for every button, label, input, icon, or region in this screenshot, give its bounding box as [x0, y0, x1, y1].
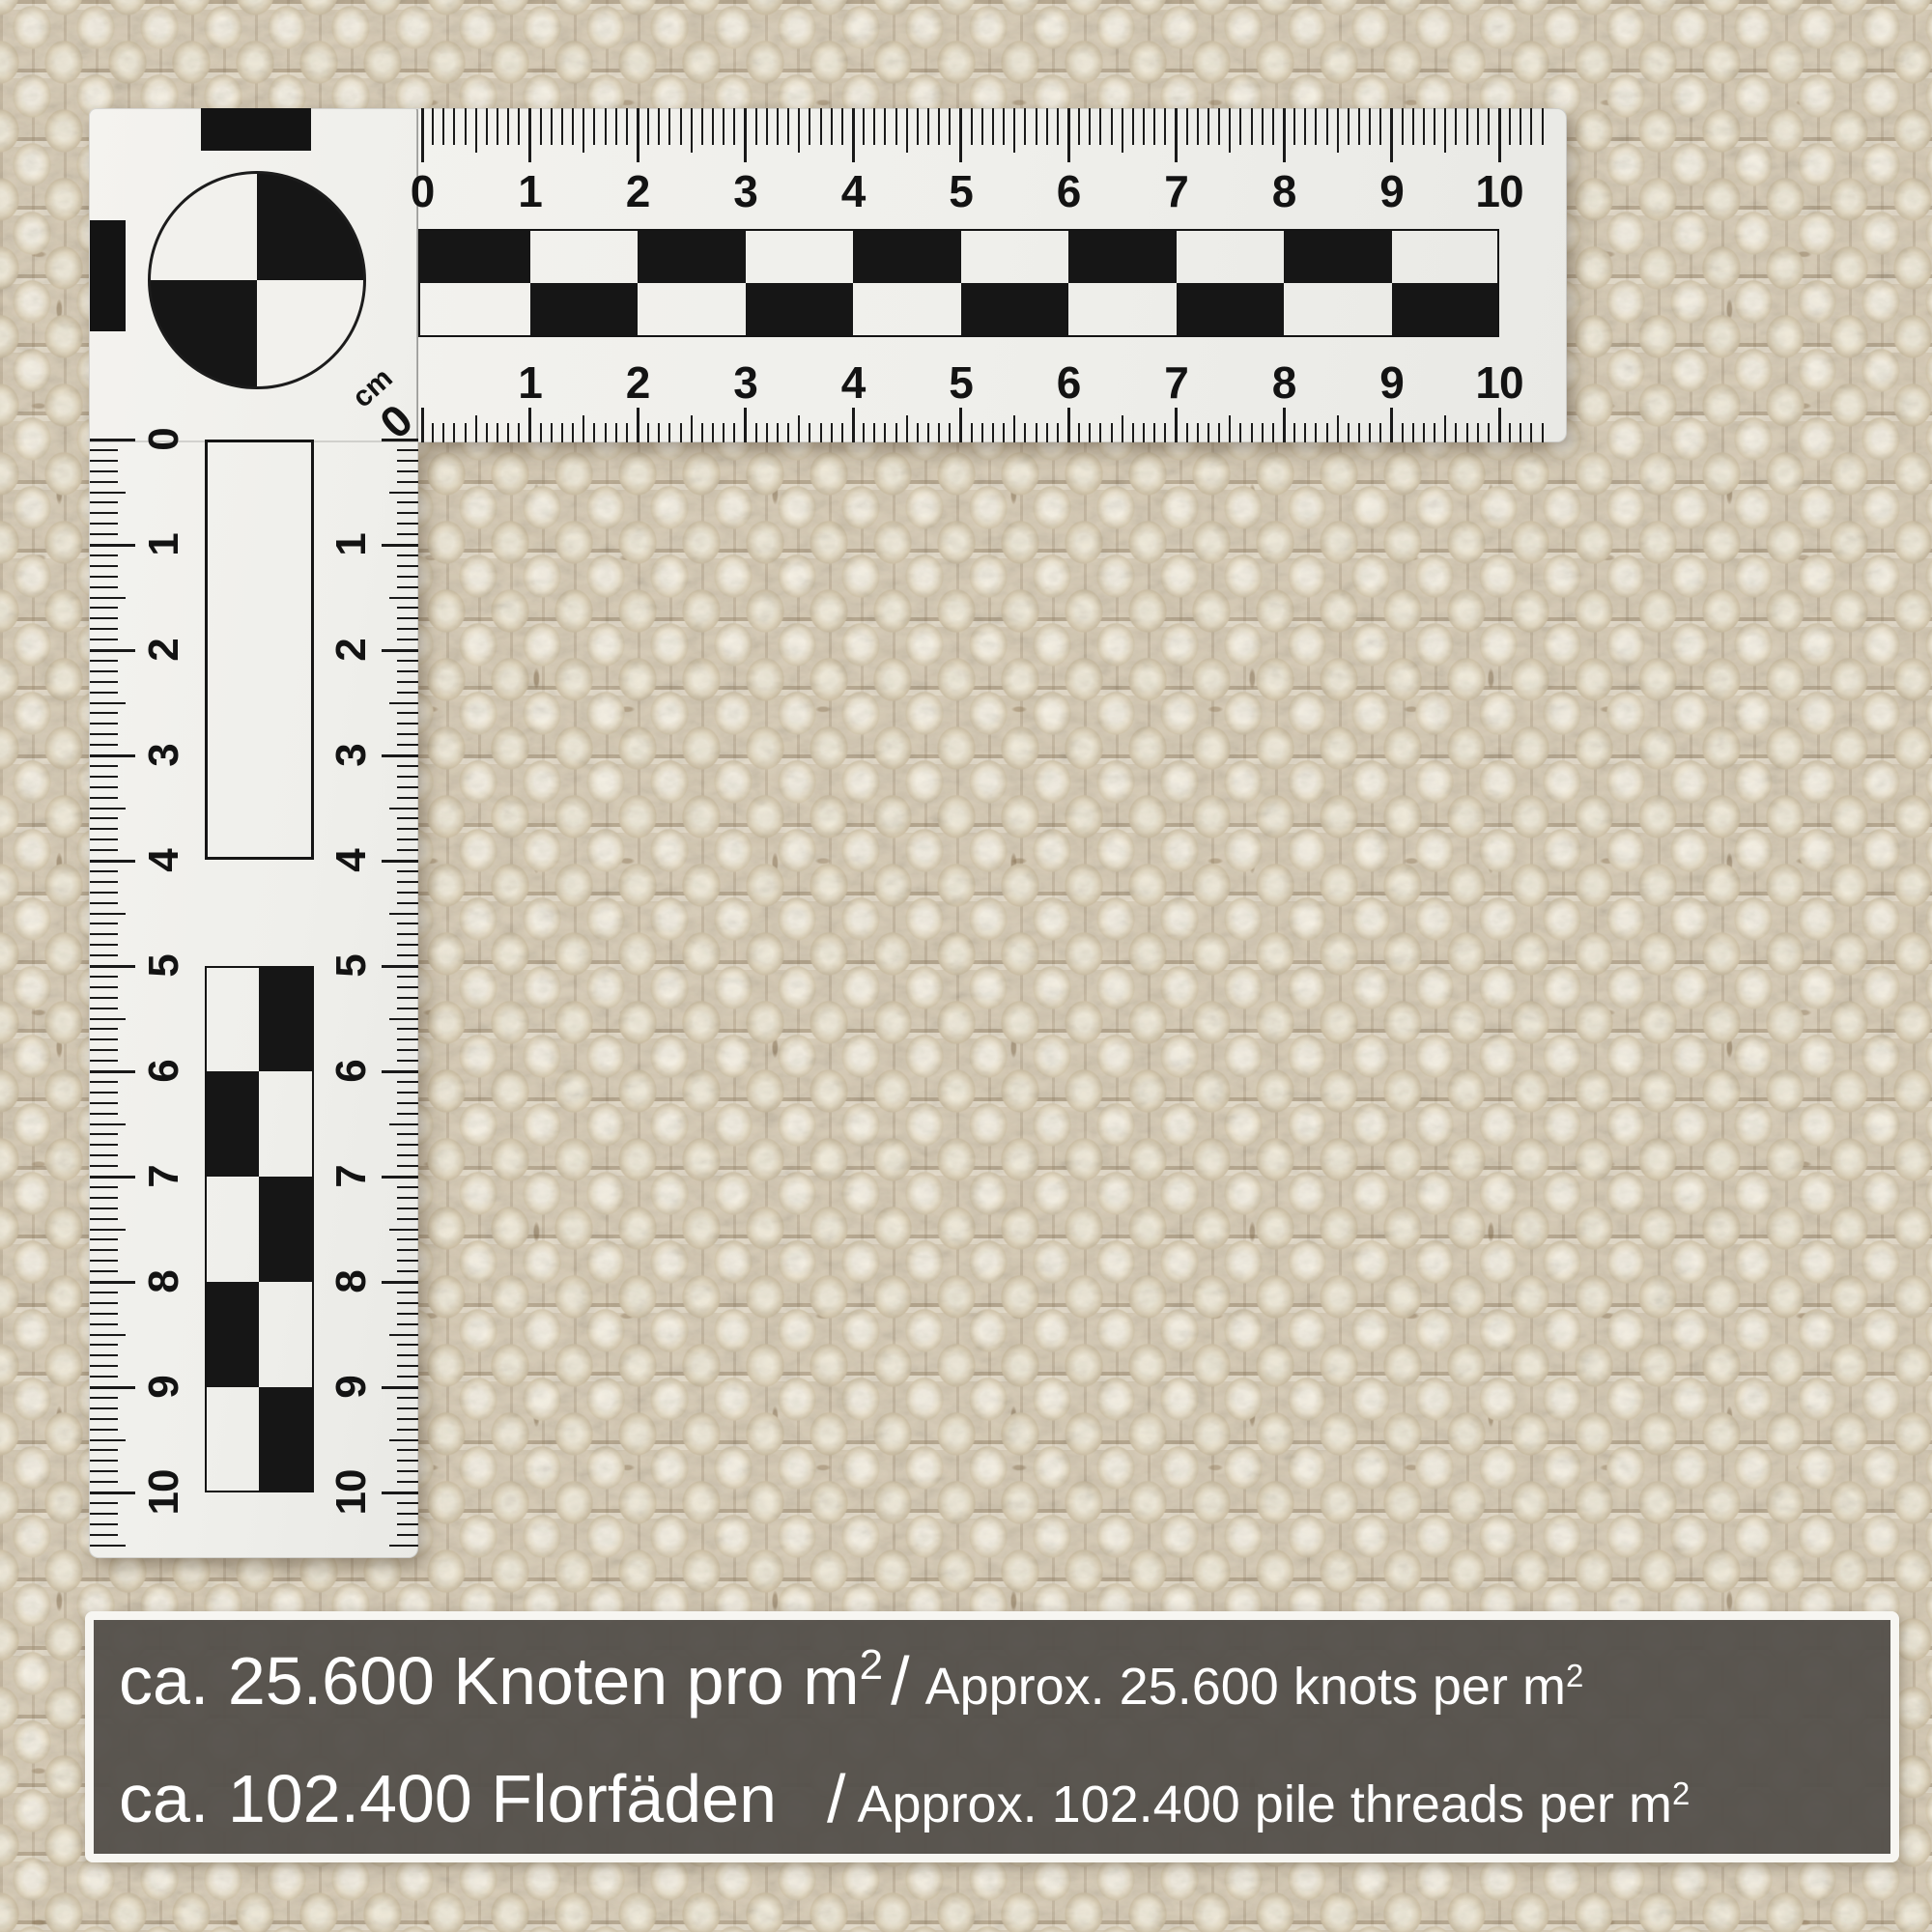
tick-bottom	[820, 423, 822, 442]
tick-top	[1003, 108, 1005, 145]
tick-bottom	[884, 423, 886, 442]
tick-right	[397, 1344, 418, 1346]
tick-right	[389, 1439, 418, 1441]
scale-number-right: 5	[327, 954, 376, 977]
tick-bottom	[777, 423, 779, 442]
tick-bottom	[1444, 415, 1446, 442]
tick-top	[766, 108, 768, 145]
tick-top	[1358, 108, 1360, 145]
tick-right	[397, 470, 418, 472]
checkerboard-bar-vertical	[205, 966, 314, 1492]
tick-top	[561, 108, 563, 145]
tick-left	[90, 849, 118, 851]
tick-right	[397, 1397, 418, 1399]
tick-right	[397, 639, 418, 640]
scale-number-left: 1	[140, 533, 188, 555]
tick-right	[382, 754, 418, 757]
pile-threads-line: ca. 102.400 Florfäden / Approx. 102.400 …	[119, 1765, 1690, 1833]
scale-number-right: 4	[327, 849, 376, 871]
tick-top	[701, 108, 703, 145]
tick-top	[668, 108, 670, 145]
tick-bottom	[723, 423, 724, 442]
tick-top	[1348, 108, 1350, 145]
tick-top	[755, 108, 757, 145]
tick-bottom	[755, 423, 757, 442]
tick-top	[895, 108, 897, 145]
tick-right	[397, 1313, 418, 1315]
tick-left	[90, 1313, 118, 1315]
tick-top	[626, 108, 628, 145]
tick-bottom	[1197, 423, 1199, 442]
tick-left	[90, 776, 118, 778]
tick-top	[442, 108, 444, 145]
tick-right	[397, 944, 418, 946]
tick-top	[605, 108, 607, 145]
tick-right	[397, 786, 418, 788]
tick-left	[90, 1133, 118, 1135]
tick-left	[90, 460, 118, 462]
tick-left	[90, 1081, 118, 1083]
tick-bottom	[605, 423, 607, 442]
tick-left	[90, 1060, 118, 1062]
scale-number-right: 2	[327, 639, 376, 661]
tick-bottom	[809, 423, 810, 442]
tick-bottom	[841, 423, 843, 442]
tick-right	[397, 1102, 418, 1104]
tick-left	[90, 786, 118, 788]
tick-bottom	[1326, 423, 1328, 442]
scale-number-right: 8	[327, 1270, 376, 1293]
tick-top	[917, 108, 919, 145]
tick-bottom	[1111, 423, 1113, 442]
tick-right	[397, 681, 418, 683]
tick-bottom	[1304, 423, 1306, 442]
tick-bottom	[1477, 423, 1479, 442]
checkerboard-bar-horizontal	[418, 229, 1499, 337]
tick-bottom	[906, 415, 908, 442]
scale-number-right: 1	[327, 533, 376, 555]
tick-bottom	[582, 415, 584, 442]
tick-top	[1024, 108, 1026, 145]
tick-left	[90, 1176, 135, 1179]
tick-bottom	[1132, 423, 1134, 442]
tick-bottom	[1057, 423, 1059, 442]
tick-right	[397, 1460, 418, 1462]
tick-left	[90, 913, 126, 915]
scale-number-bottom: 7	[1164, 356, 1188, 409]
tick-bottom	[1175, 408, 1178, 442]
tick-right	[397, 712, 418, 714]
scale-number-bottom: 3	[733, 356, 757, 409]
tick-left	[90, 923, 118, 924]
tick-right	[397, 628, 418, 630]
tick-bottom	[1251, 423, 1253, 442]
tick-top	[938, 108, 940, 145]
threads-separator: /	[827, 1765, 845, 1833]
tick-top	[744, 108, 747, 162]
tick-left	[90, 607, 118, 609]
tick-top	[582, 108, 584, 153]
tick-right	[389, 702, 418, 704]
tick-left	[90, 670, 118, 672]
tick-top	[1067, 108, 1070, 162]
tick-right	[397, 1081, 418, 1083]
tick-top	[1251, 108, 1253, 145]
tick-top	[475, 108, 477, 153]
tick-bottom	[1542, 423, 1544, 442]
tick-top	[1239, 108, 1241, 145]
tick-right	[397, 449, 418, 451]
scale-number-left: 4	[140, 849, 188, 871]
knots-sup-de: 2	[860, 1644, 883, 1687]
tick-bottom	[1078, 423, 1080, 442]
tick-left	[90, 1144, 118, 1146]
tick-top	[1304, 108, 1306, 145]
tick-left	[90, 1513, 118, 1515]
tick-right	[397, 586, 418, 588]
tick-left	[90, 1470, 118, 1472]
scale-number-top: 2	[626, 165, 650, 217]
tick-right	[397, 1038, 418, 1040]
tick-bottom	[701, 423, 703, 442]
tick-top	[680, 108, 682, 145]
tick-top	[465, 108, 467, 145]
tick-right	[397, 460, 418, 462]
tick-top	[572, 108, 574, 145]
tick-right	[397, 1292, 418, 1293]
tick-right	[382, 1281, 418, 1284]
tick-right	[397, 892, 418, 894]
tick-left	[90, 1249, 118, 1251]
tick-right	[397, 838, 418, 840]
tick-right	[397, 1008, 418, 1009]
tick-top	[1423, 108, 1425, 145]
tick-top	[809, 108, 810, 145]
tick-right	[389, 1545, 418, 1547]
tick-bottom	[465, 423, 467, 442]
tick-bottom	[561, 423, 563, 442]
tick-right	[397, 533, 418, 535]
scale-number-bottom: 4	[841, 356, 866, 409]
tick-top	[1013, 108, 1015, 153]
tick-bottom	[959, 408, 962, 442]
tick-left	[90, 1270, 118, 1272]
scale-number-top: 1	[518, 165, 542, 217]
tick-bottom	[486, 423, 488, 442]
tick-bottom	[680, 423, 682, 442]
tick-right	[397, 1470, 418, 1472]
tick-left	[90, 649, 135, 652]
tick-bottom	[1283, 408, 1286, 442]
tick-bottom	[1423, 423, 1425, 442]
tick-bottom	[1358, 423, 1360, 442]
tick-right	[397, 1113, 418, 1115]
tick-right	[397, 1133, 418, 1135]
tick-top	[981, 108, 983, 145]
scale-number-left: 0	[140, 428, 188, 450]
tick-bottom	[1003, 423, 1005, 442]
tick-left	[90, 1418, 118, 1420]
tick-top	[1132, 108, 1134, 145]
tick-top	[841, 108, 843, 145]
tick-bottom	[798, 415, 800, 442]
tick-bottom	[1099, 423, 1101, 442]
tick-bottom	[1315, 423, 1317, 442]
tick-left	[90, 449, 118, 451]
tick-bottom	[668, 423, 670, 442]
tick-right	[397, 1407, 418, 1409]
tick-bottom	[1390, 408, 1393, 442]
tick-top	[1036, 108, 1037, 145]
tick-right	[397, 954, 418, 956]
tick-top	[1046, 108, 1048, 145]
tick-right	[397, 523, 418, 525]
scale-number-bottom: 1	[518, 356, 542, 409]
tick-right	[389, 913, 418, 915]
tick-right	[397, 1534, 418, 1536]
info-band: ca. 25.600 Knoten pro m 2 / Approx. 25.6…	[85, 1611, 1899, 1862]
tick-left	[90, 1092, 118, 1094]
tick-right	[389, 1123, 418, 1125]
tick-right	[382, 1176, 418, 1179]
tick-left	[90, 1292, 118, 1293]
tick-right	[397, 1429, 418, 1431]
tick-bottom	[497, 423, 498, 442]
tick-top	[1315, 108, 1317, 145]
tick-top	[1412, 108, 1414, 145]
tick-bottom	[1218, 423, 1220, 442]
tick-left	[90, 1154, 118, 1156]
tick-right	[397, 1323, 418, 1325]
tick-right	[397, 576, 418, 578]
tick-left	[90, 1429, 118, 1431]
tick-left	[90, 933, 118, 935]
tick-top	[1283, 108, 1286, 162]
tick-top	[1229, 108, 1231, 153]
tick-top	[1207, 108, 1209, 145]
tick-left	[90, 765, 118, 767]
tick-left	[90, 1302, 118, 1304]
tick-bottom	[992, 423, 994, 442]
tick-bottom	[733, 423, 735, 442]
tick-right	[397, 1165, 418, 1167]
tick-top	[551, 108, 553, 145]
tick-top	[873, 108, 875, 145]
tick-bottom	[766, 423, 768, 442]
tick-bottom	[1143, 423, 1145, 442]
tick-left	[90, 733, 118, 735]
tick-left	[90, 1238, 118, 1240]
tick-left	[90, 1008, 118, 1009]
tick-bottom	[691, 415, 693, 442]
tick-bottom	[593, 423, 595, 442]
tick-left	[90, 1534, 118, 1536]
tick-bottom	[1337, 415, 1339, 442]
tick-right	[397, 1481, 418, 1483]
tick-left	[90, 986, 118, 988]
tick-bottom	[475, 415, 477, 442]
tick-left	[90, 1323, 118, 1325]
tick-left	[90, 1397, 118, 1399]
tick-bottom	[1067, 408, 1070, 442]
tick-left	[90, 870, 118, 872]
tick-bottom	[1530, 423, 1532, 442]
threads-text-de: ca. 102.400 Florfäden	[119, 1765, 777, 1833]
tick-top	[1143, 108, 1145, 145]
tick-right	[382, 649, 418, 652]
tick-right	[382, 965, 418, 968]
tick-bottom	[1024, 423, 1026, 442]
scale-number-right: 10	[327, 1470, 376, 1516]
tick-right	[397, 670, 418, 672]
tick-right	[382, 860, 418, 863]
tick-bottom	[507, 423, 509, 442]
tick-right	[397, 692, 418, 694]
tick-top	[1337, 108, 1339, 153]
tick-top	[906, 108, 908, 153]
knots-separator: /	[891, 1647, 909, 1715]
scale-number-left: 7	[140, 1165, 188, 1187]
scale-number-top: 10	[1475, 165, 1522, 217]
tick-right	[397, 1523, 418, 1525]
tick-bottom	[1402, 423, 1404, 442]
calibration-box	[205, 440, 314, 860]
tick-left	[90, 1439, 126, 1441]
tick-left	[90, 1481, 118, 1483]
tick-bottom	[1122, 415, 1123, 442]
tick-right	[389, 492, 418, 494]
tick-top	[1434, 108, 1435, 145]
tick-right	[397, 554, 418, 556]
tick-top	[1466, 108, 1468, 145]
tick-right	[397, 1092, 418, 1094]
tick-right	[397, 933, 418, 935]
tick-right	[389, 1334, 418, 1336]
tick-left	[90, 586, 118, 588]
tick-left	[90, 1492, 135, 1494]
tick-right	[397, 723, 418, 724]
tick-left	[90, 470, 118, 472]
tick-top	[733, 108, 735, 145]
tick-bottom	[1036, 423, 1037, 442]
tick-bottom	[1412, 423, 1414, 442]
tick-right	[397, 776, 418, 778]
tick-right	[382, 544, 418, 547]
scale-number-top: 9	[1379, 165, 1404, 217]
tick-top	[658, 108, 660, 145]
tick-right	[397, 1270, 418, 1272]
scale-number-top: 5	[949, 165, 973, 217]
tick-left	[90, 1113, 118, 1115]
tick-top	[1122, 108, 1123, 153]
tick-top	[615, 108, 617, 145]
tick-left	[90, 481, 118, 483]
tick-bottom	[1164, 423, 1166, 442]
tick-top	[1218, 108, 1220, 145]
tick-left	[90, 1049, 118, 1051]
tick-top	[1099, 108, 1101, 145]
tick-top	[1390, 108, 1393, 162]
tick-bottom	[432, 423, 434, 442]
tick-right	[397, 1260, 418, 1262]
tick-left	[90, 617, 118, 619]
tick-bottom	[572, 423, 574, 442]
scale-number-right: 3	[327, 744, 376, 766]
tick-top	[959, 108, 962, 162]
tick-top	[528, 108, 531, 162]
knots-text-de: ca. 25.600 Knoten pro m	[119, 1647, 860, 1715]
tick-right	[397, 849, 418, 851]
tick-left	[90, 1344, 118, 1346]
knots-sup-en: 2	[1566, 1660, 1583, 1691]
tick-right	[397, 1249, 418, 1251]
tick-left	[90, 1523, 118, 1525]
tick-bottom	[1379, 423, 1381, 442]
tick-right	[397, 1376, 418, 1378]
corner-black-rectangle	[201, 108, 311, 151]
tick-left	[90, 628, 118, 630]
tick-left	[90, 1407, 118, 1409]
tick-bottom	[873, 423, 875, 442]
tick-bottom	[1369, 423, 1371, 442]
tick-bottom	[1498, 408, 1501, 442]
scale-number-bottom: 9	[1379, 356, 1404, 409]
tick-top	[1542, 108, 1544, 145]
tick-top	[927, 108, 929, 145]
tick-top	[1488, 108, 1490, 145]
tick-right	[397, 733, 418, 735]
tick-right	[389, 1018, 418, 1020]
tick-bottom	[1013, 415, 1015, 442]
tick-left	[90, 1218, 118, 1220]
tick-bottom	[637, 408, 639, 442]
tick-right	[397, 923, 418, 924]
tick-left	[90, 1376, 118, 1378]
tick-bottom	[421, 408, 424, 442]
tick-bottom	[1455, 423, 1457, 442]
tick-left	[90, 1038, 118, 1040]
tick-right	[382, 1386, 418, 1389]
tick-left	[90, 1070, 135, 1073]
tick-left	[90, 544, 135, 547]
tick-top	[1175, 108, 1178, 162]
tick-bottom	[927, 423, 929, 442]
scale-number-top: 8	[1272, 165, 1296, 217]
tick-right	[397, 797, 418, 799]
tick-bottom	[1434, 423, 1435, 442]
tick-top	[863, 108, 865, 145]
tick-left	[90, 954, 118, 956]
tick-bottom	[615, 423, 617, 442]
scale-number-bottom: 10	[1475, 356, 1522, 409]
tick-left	[90, 501, 118, 503]
scale-number-bottom: 8	[1272, 356, 1296, 409]
tick-bottom	[1272, 423, 1274, 442]
tick-bottom	[528, 408, 531, 442]
tick-top	[1153, 108, 1155, 145]
tick-left	[90, 565, 118, 567]
tick-bottom	[787, 423, 789, 442]
tick-bottom	[1293, 423, 1295, 442]
tick-right	[389, 597, 418, 599]
photo-stage: 0123456789101234567891001234567891012345…	[0, 0, 1932, 1932]
tick-right	[397, 607, 418, 609]
tick-left	[90, 881, 118, 883]
tick-bottom	[1262, 423, 1264, 442]
tick-bottom	[949, 423, 951, 442]
tick-right	[397, 744, 418, 746]
tick-bottom	[518, 423, 520, 442]
